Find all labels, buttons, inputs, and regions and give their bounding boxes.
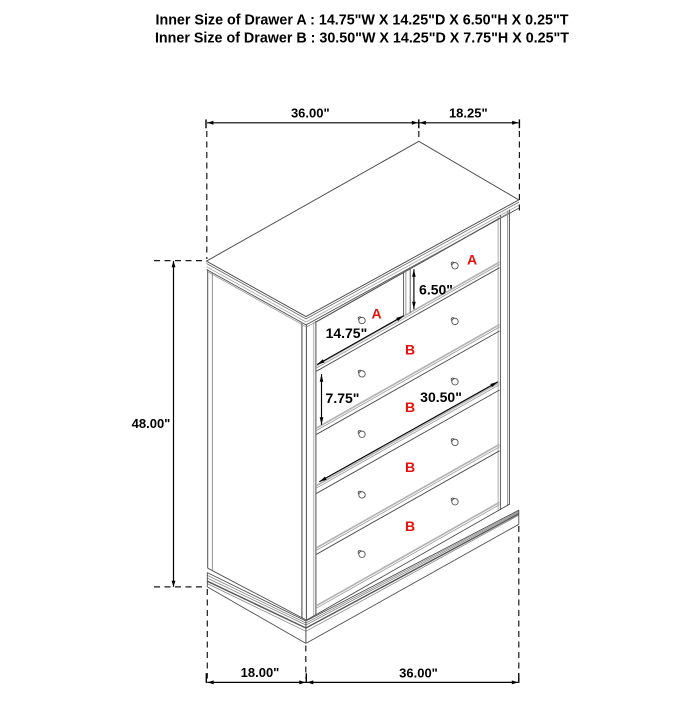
svg-text:6.50": 6.50"	[419, 281, 453, 297]
svg-text:7.75": 7.75"	[326, 390, 360, 406]
svg-text:48.00": 48.00"	[132, 416, 171, 431]
svg-text:30.50": 30.50"	[420, 389, 462, 405]
svg-text:B: B	[405, 399, 415, 415]
svg-text:B: B	[405, 342, 415, 358]
svg-text:Inner Size of Drawer B : 30.50: Inner Size of Drawer B : 30.50"W X 14.25…	[155, 31, 569, 47]
svg-text:14.75": 14.75"	[326, 325, 368, 341]
svg-text:18.00": 18.00"	[241, 665, 280, 680]
svg-text:B: B	[405, 459, 415, 475]
svg-text:36.00": 36.00"	[291, 106, 330, 121]
svg-text:36.00": 36.00"	[399, 665, 438, 680]
svg-text:A: A	[371, 306, 381, 322]
svg-text:Inner Size of Drawer A : 14.75: Inner Size of Drawer A : 14.75"W X 14.25…	[155, 13, 568, 29]
svg-text:A: A	[467, 252, 477, 268]
svg-text:18.25": 18.25"	[449, 106, 488, 121]
svg-text:B: B	[405, 518, 415, 534]
